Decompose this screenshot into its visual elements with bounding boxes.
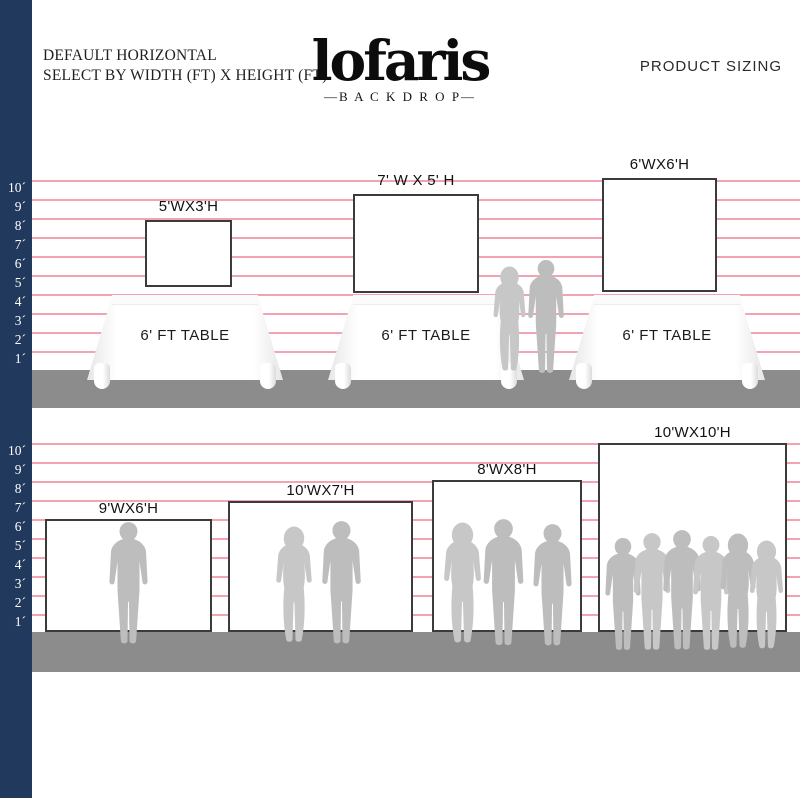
woman-silhouette (494, 266, 526, 370)
tablecloth-pleat (335, 363, 351, 389)
tablecloth-pleat (742, 363, 758, 389)
table-3: 6' FT TABLE (569, 295, 765, 380)
ruler-tick-label: 4´ (0, 557, 26, 572)
woman-silhouette (276, 527, 311, 642)
ruler-bar (0, 0, 32, 798)
table-top-surface (112, 295, 257, 305)
ruler-tick-label: 1´ (0, 351, 26, 366)
ruler-tick-label: 5´ (0, 538, 26, 553)
backdrop-size-label: 5'WX3'H (145, 198, 232, 215)
ruler-tick-label: 3´ (0, 313, 26, 328)
backdrop-size-label: 9'WX6'H (45, 500, 212, 517)
ruler-tick-label: 9´ (0, 462, 26, 477)
woman-silhouette (750, 541, 783, 649)
man-silhouette (322, 521, 360, 643)
backdrop-size-label: 8'WX8'H (432, 461, 582, 478)
person-silhouette (103, 521, 153, 651)
table-top-surface (594, 295, 739, 305)
backdrop-size-label: 10'WX7'H (228, 482, 413, 499)
backdrop-size-label: 10'WX10'H (598, 424, 787, 441)
backdrop-6x6 (602, 178, 717, 292)
ruler-tick-label: 2´ (0, 332, 26, 347)
ruler-tick-label: 10´ (0, 443, 26, 458)
man-silhouette (109, 522, 147, 643)
table-1: 6' FT TABLE (87, 295, 283, 380)
table-label: 6' FT TABLE (87, 327, 283, 344)
brand-logo: lofaris —B A C K D R O P— (240, 34, 560, 105)
page-title: PRODUCT SIZING (640, 58, 782, 75)
ruler-tick-label: 7´ (0, 237, 26, 252)
ruler-tick-label: 2´ (0, 595, 26, 610)
ruler-tick-label: 6´ (0, 256, 26, 271)
couple-silhouette (272, 520, 368, 651)
brand-logo-wordmark: lofaris (240, 34, 560, 88)
group-of-three-silhouette (440, 517, 577, 653)
ruler-tick-label: 8´ (0, 218, 26, 233)
backdrop-7x5 (353, 194, 479, 293)
backdrop-size-label: 6'WX6'H (602, 156, 717, 173)
ruler-tick-label: 10´ (0, 180, 26, 195)
ruler-tick-label: 6´ (0, 519, 26, 534)
woman-silhouette (444, 523, 481, 643)
tablecloth-pleat (94, 363, 110, 389)
man-silhouette (484, 519, 524, 645)
tablecloth-pleat (260, 363, 276, 389)
ruler-tick-label: 9´ (0, 199, 26, 214)
man-silhouette (528, 260, 563, 373)
table-label: 6' FT TABLE (569, 327, 765, 344)
man-silhouette (693, 536, 729, 650)
ruler-tick-label: 4´ (0, 294, 26, 309)
ruler-tick-label: 1´ (0, 614, 26, 629)
ruler-tick-label: 5´ (0, 275, 26, 290)
backdrop-5x3 (145, 220, 232, 287)
man-silhouette (533, 524, 571, 645)
ruler-tick-label: 8´ (0, 481, 26, 496)
group-of-six-silhouette (601, 529, 785, 657)
ruler-tick-label: 7´ (0, 500, 26, 515)
man-silhouette (605, 538, 640, 650)
tablecloth-pleat (576, 363, 592, 389)
ruler-tick-label: 3´ (0, 576, 26, 591)
table-top-surface (353, 295, 498, 305)
couple-silhouette (490, 256, 570, 380)
backdrop-size-label: 7' W X 5' H (353, 172, 479, 189)
brand-logo-subtitle: —B A C K D R O P— (240, 89, 560, 105)
